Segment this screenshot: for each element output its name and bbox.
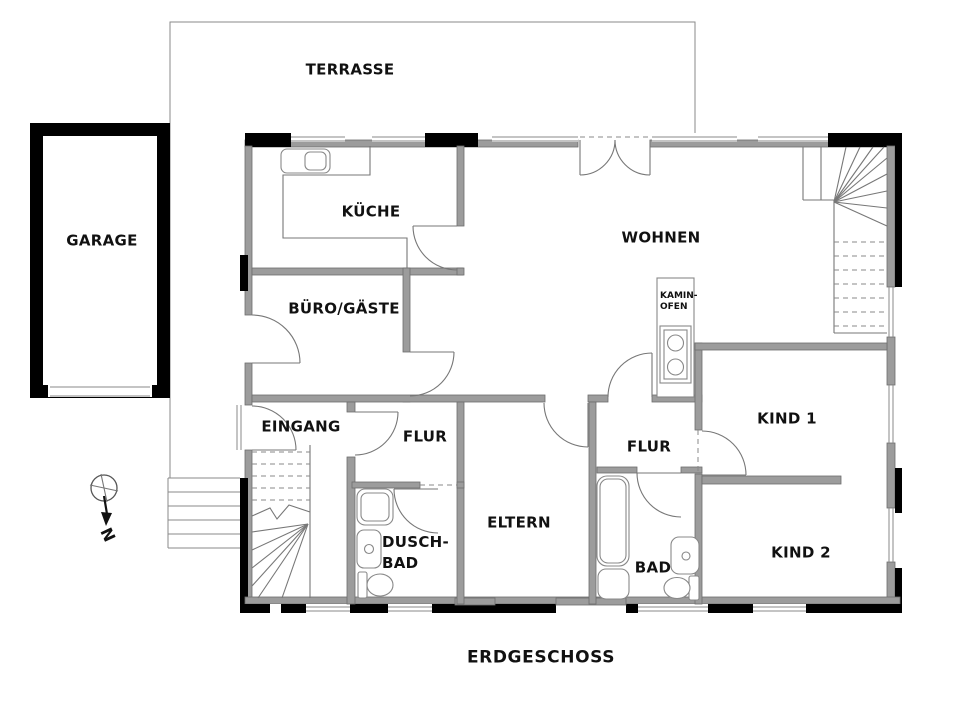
label-buero-gaeste: BÜRO/GÄSTE — [288, 299, 400, 320]
window-bottom-1 — [306, 604, 350, 613]
floor-plan: N TERRASSE GARAGE KÜCHE WOHNEN BÜRO/GÄST… — [0, 0, 971, 716]
label-terrasse: TERRASSE — [306, 60, 395, 81]
shower-icon — [357, 489, 393, 525]
label-kamin-ofen: KAMIN- OFEN — [660, 291, 698, 312]
exterior-wall-right — [887, 133, 902, 613]
window-right-3 — [889, 508, 893, 562]
window-top-4 — [652, 134, 737, 142]
washbasin-icon — [357, 530, 381, 568]
window-bottom-4 — [638, 604, 708, 613]
exterior-wall-top — [245, 133, 902, 147]
label-flur-west: FLUR — [403, 427, 447, 448]
north-label: N — [96, 525, 119, 545]
window-right-1 — [889, 287, 893, 337]
label-kind1: KIND 1 — [757, 409, 817, 430]
door-flur-east — [608, 353, 652, 397]
exterior-wall-left — [237, 146, 252, 604]
floor-plan-drawing: N — [0, 0, 971, 716]
label-garage: GARAGE — [66, 231, 137, 252]
label-eingang: EINGANG — [261, 417, 340, 438]
entry-steps — [168, 478, 240, 548]
door-bad — [637, 473, 681, 517]
bad-washbasin-icon — [671, 537, 699, 574]
kitchen-sink-icon — [281, 149, 330, 173]
label-flur-east: FLUR — [627, 437, 671, 458]
window-top-1 — [291, 134, 345, 142]
door-duschbad — [394, 485, 457, 533]
bad-toilet-icon — [664, 576, 699, 600]
toilet-icon — [358, 572, 393, 598]
door-terrasse-double — [580, 137, 650, 175]
floor-title: ERDGESCHOSS — [467, 648, 615, 669]
window-top-5 — [758, 134, 828, 142]
window-top-3 — [492, 134, 578, 142]
exterior-wall-bottom — [240, 597, 902, 613]
main-staircase — [803, 147, 887, 333]
door-buero-west — [252, 315, 300, 363]
label-kueche: KÜCHE — [342, 202, 401, 223]
window-right-2 — [889, 385, 893, 443]
label-kind2: KIND 2 — [771, 543, 831, 564]
door-buero-wohnen — [410, 352, 454, 396]
door-eltern — [544, 403, 588, 447]
label-eltern: ELTERN — [487, 513, 551, 534]
north-arrow-icon: N — [90, 474, 119, 545]
window-bottom-5 — [753, 604, 806, 613]
door-kueche — [413, 226, 457, 270]
door-flur-west — [355, 412, 398, 455]
door-kind1 — [698, 430, 746, 475]
label-wohnen: WOHNEN — [621, 228, 700, 249]
garage-structure — [30, 123, 170, 398]
label-dusch-bad: DUSCH- BAD — [382, 532, 449, 574]
window-bottom-2 — [388, 604, 432, 613]
entrance-staircase — [252, 445, 310, 598]
label-bad: BAD — [635, 558, 671, 579]
bathtub-icon — [597, 476, 629, 599]
window-top-2 — [372, 134, 425, 142]
